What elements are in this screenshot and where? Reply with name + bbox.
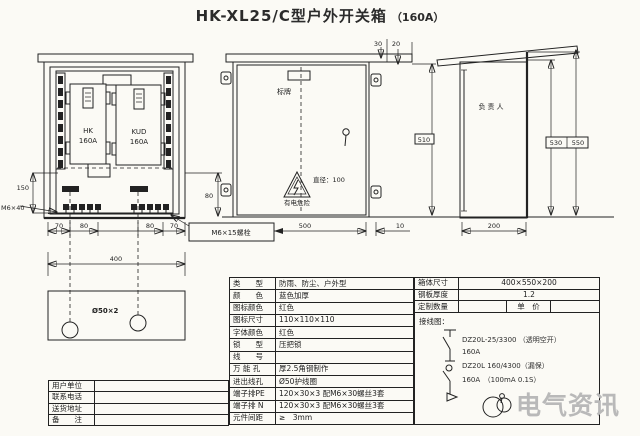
spec-label: 字体颜色 [230,327,276,339]
dim-200: 200 [488,222,500,230]
spec-label: 图标尺寸 [230,314,276,326]
danger-sign [284,172,310,197]
order-table: 箱体尺寸400×550×200 钢板厚度1.2 定制数量 单 价 [414,277,600,313]
spec-label: 类 型 [230,278,276,290]
dim-510: 510 [418,136,430,144]
spec-label: 端子排 N [230,400,276,412]
spec-value: 压把锁 [276,339,414,351]
order-value: 400×550×200 [459,278,600,290]
spec-value: 120×30×3 配M6×30螺丝3套 [276,400,414,412]
plate-holes-label: Ø50×2 [92,307,119,315]
order-value [551,301,600,313]
nameplate-label: 标牌 [277,87,291,96]
breaker-right: KUD 160A [112,85,165,165]
contact-table: 用户单位 联系电话 送货地址 备 注 [48,380,229,426]
dim-150: 150 [17,184,29,192]
spec-label: 颜 色 [230,290,276,302]
order-value [459,301,507,313]
dim-500: 500 [299,222,311,230]
contact-value [95,381,229,392]
side-door-label: 负责人 [479,102,506,111]
contact-value [95,392,229,403]
wiring-breaker2-model: DZ20L 160/4300（漏保） [462,361,549,371]
spec-label: 锁 型 [230,339,276,351]
order-label: 箱体尺寸 [415,278,459,290]
bolt-note-text: M6×15螺栓 [211,228,250,237]
order-label: 定制数量 [415,301,459,313]
dim-400: 400 [110,255,122,263]
wiring-breaker1-model: DZ20L-25/3300 （透明空开） [462,335,561,345]
spec-value: 120×30×3 配M6×30螺丝3套 [276,388,414,400]
spec-label: 万 能 孔 [230,363,276,375]
breaker-right-name: KUD [132,128,147,136]
bolt-note: M6×15螺栓 [171,215,283,241]
spec-value [276,351,414,363]
contact-value [95,403,229,414]
side-view: 负责人 [437,46,578,218]
order-label: 钢板厚度 [415,289,459,301]
spec-table: 类 型防雨、防尘、户外型 颜 色蓝色加厚 图标颜色红色 图标尺寸110×110×… [229,277,414,425]
spec-label: 进出线孔 [230,376,276,388]
contact-label: 联系电话 [49,392,95,403]
wiring-breaker1-rating: 160A [462,348,480,356]
side-view-dimensions: 530 550 200 [462,50,588,236]
door-view: 标牌 直径：100 有电危险 [221,54,412,217]
breaker-right-rating: 160A [130,138,148,146]
dim-80-vertical: 80 [205,192,213,200]
dim-30: 30 [374,40,382,48]
dim-80-right: 80 [146,222,154,230]
spec-value: 厚2.5角钢制作 [276,363,414,375]
spec-value: 蓝色加厚 [276,290,414,302]
nameplate-slot [288,71,310,80]
dim-530: 530 [550,139,562,147]
order-label: 单 价 [507,301,551,313]
order-value: 1.2 [459,289,600,301]
door-view-dimensions: 30 20 500 10 510 [237,39,436,236]
spec-value: 110×110×110 [276,314,414,326]
breaker-left-name: HK [83,127,93,135]
bolt-label-m6x40: M6×40 [1,204,24,212]
contact-label: 用户单位 [49,381,95,392]
dim-70-right: 70 [170,222,178,230]
danger-text: 有电危险 [284,198,311,207]
dim-80-left: 80 [80,222,88,230]
door-handle [343,129,349,146]
wiring-breaker2-rating: 160A （100mA 0.1S） [462,375,540,385]
spec-value: Ø50护线圈 [276,376,414,388]
mounting-plate: Ø50×2 [48,291,185,340]
spec-label: 端子排PE [230,388,276,400]
drawing-sheet: HK-XL25/C型户外开关箱（160A） [0,0,640,436]
wiring-diagram-label: 接线图： [419,316,449,327]
spec-label: 线 号 [230,351,276,363]
dim-550: 550 [572,139,584,147]
spec-value: 红色 [276,302,414,314]
dim-70-left: 70 [55,222,63,230]
spec-label: 元件间距 [230,412,276,424]
dim-10: 10 [396,222,404,230]
breaker-left: HK 160A [66,84,110,164]
breaker-left-rating: 160A [79,137,97,145]
contact-value [95,414,229,425]
spec-value: ≥ 3mm [276,412,414,424]
dim-20: 20 [392,40,400,48]
spec-value: 防雨、防尘、户外型 [276,278,414,290]
mounting-centerlines [70,192,138,325]
spec-value: 红色 [276,327,414,339]
contact-label: 送货地址 [49,403,95,414]
diameter-note: 直径：100 [313,175,345,184]
spec-label: 图标颜色 [230,302,276,314]
contact-label: 备 注 [49,414,95,425]
front-view: HK 160A KUD 160A [38,54,193,218]
